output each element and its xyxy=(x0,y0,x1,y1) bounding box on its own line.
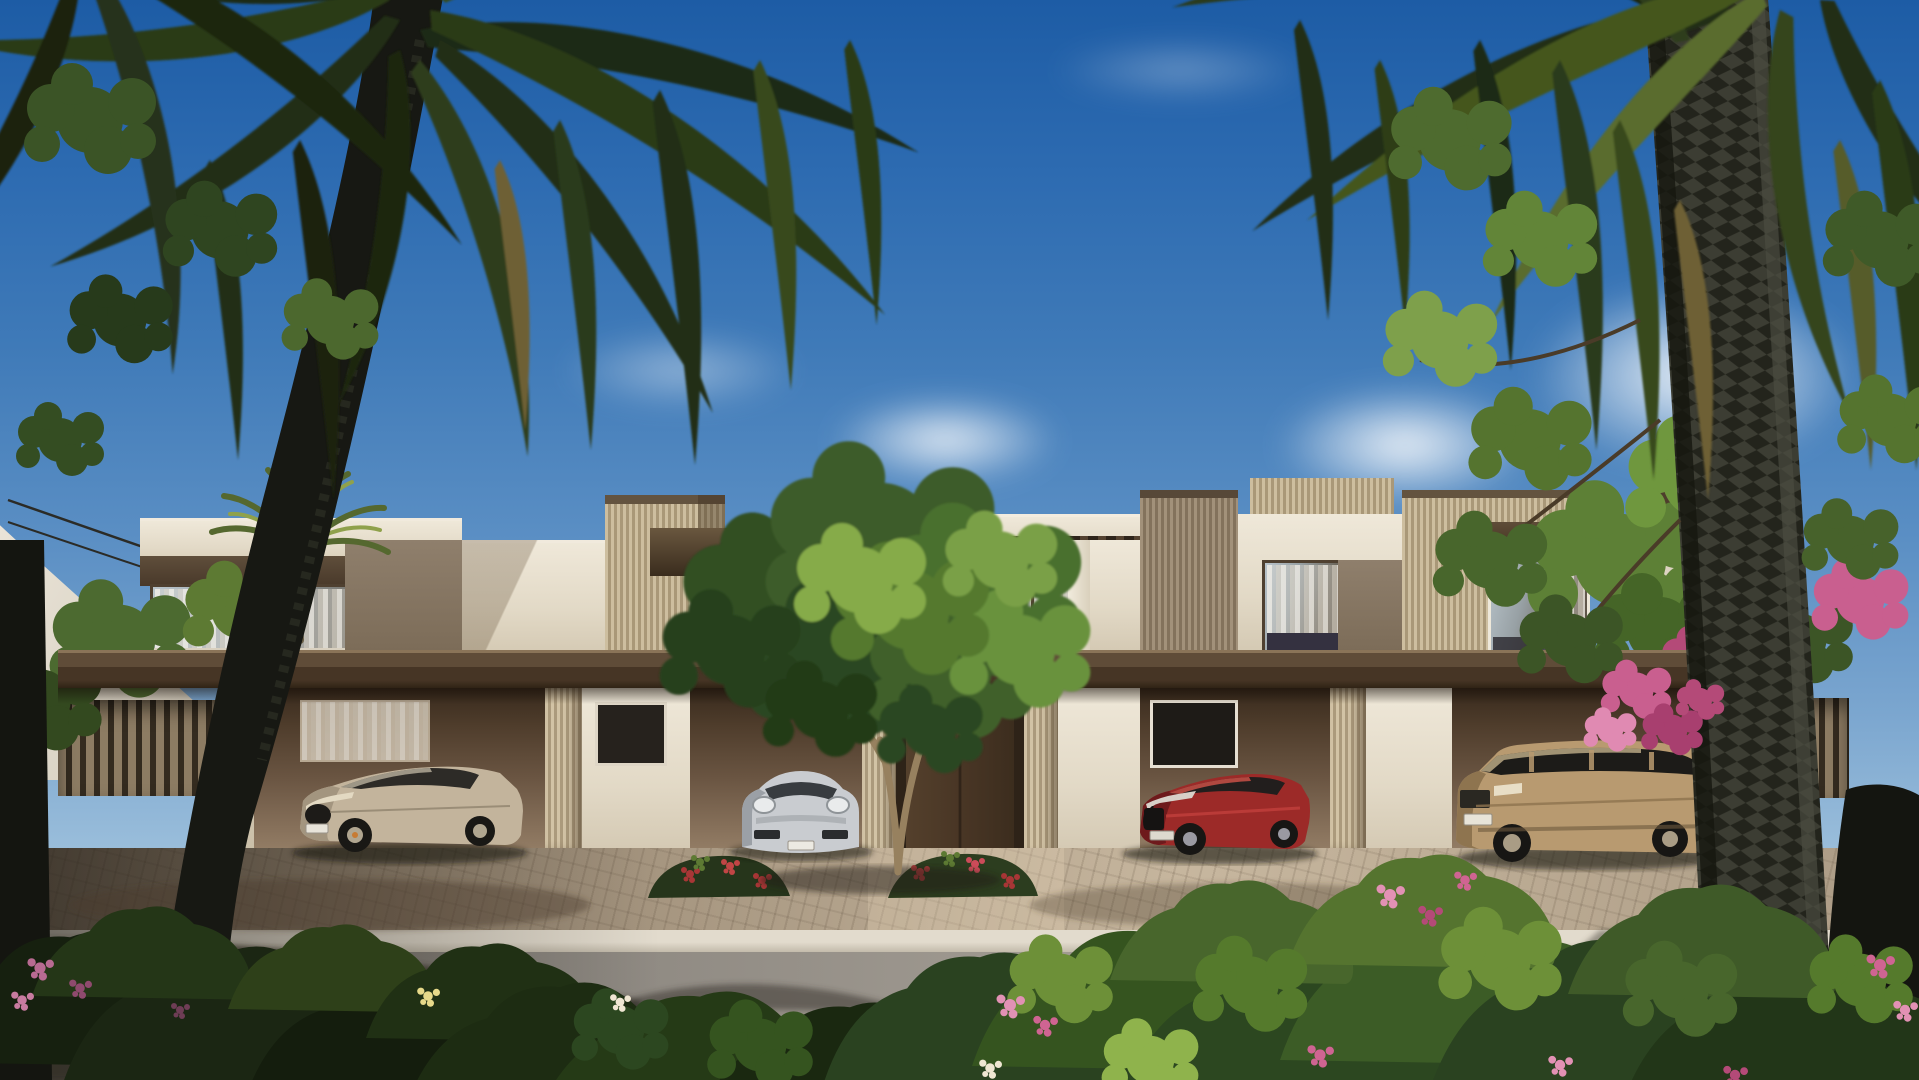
car-luxury-sedan xyxy=(292,767,528,864)
entrance-tree xyxy=(660,441,1091,894)
car-luxury-suv xyxy=(1456,740,1722,870)
scene xyxy=(0,0,1919,1080)
palm-canopy-top-left xyxy=(0,0,930,500)
car-sports xyxy=(729,771,873,861)
car-performance-sedan xyxy=(1122,774,1318,864)
foreground-layer xyxy=(0,0,1919,1080)
